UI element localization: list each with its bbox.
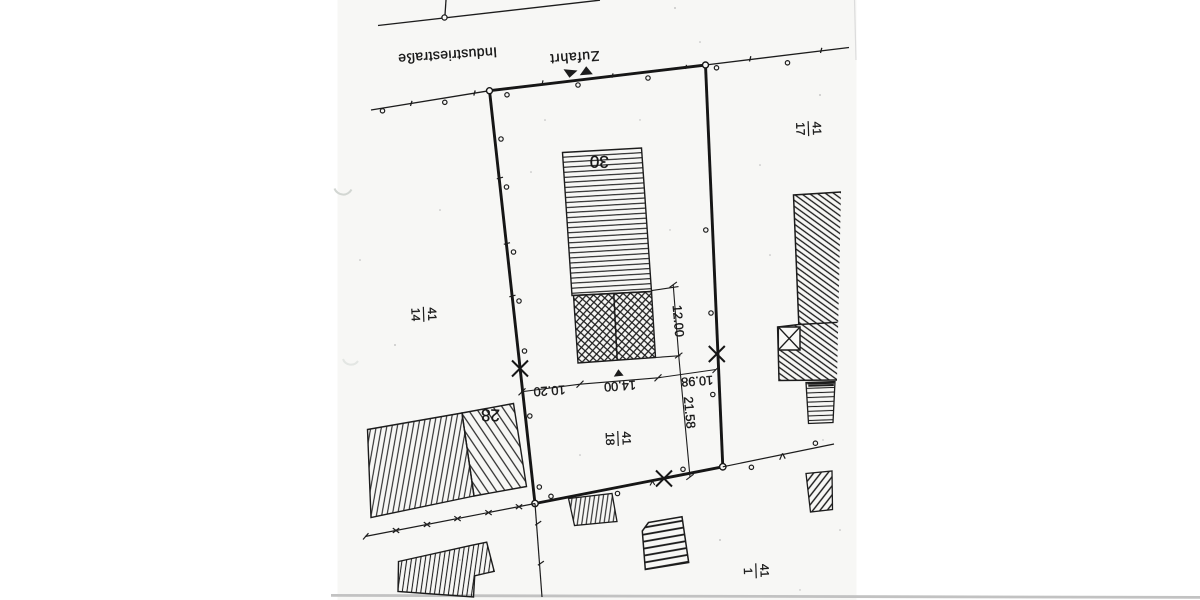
svg-text:17: 17 (793, 122, 807, 136)
svg-text:10.98: 10.98 (681, 373, 714, 390)
svg-text:28: 28 (481, 405, 500, 424)
svg-text:41: 41 (810, 121, 824, 135)
svg-text:14: 14 (408, 308, 422, 322)
svg-text:41: 41 (757, 564, 771, 578)
svg-text:41: 41 (425, 307, 439, 321)
svg-text:12.00: 12.00 (670, 304, 688, 337)
svg-text:41: 41 (619, 431, 633, 445)
svg-text:21.58: 21.58 (681, 396, 699, 429)
svg-text:30: 30 (590, 152, 609, 171)
svg-text:18: 18 (603, 432, 617, 446)
svg-text:14.00: 14.00 (604, 378, 637, 395)
svg-text:1: 1 (741, 567, 755, 574)
svg-text:10.20: 10.20 (533, 382, 566, 399)
